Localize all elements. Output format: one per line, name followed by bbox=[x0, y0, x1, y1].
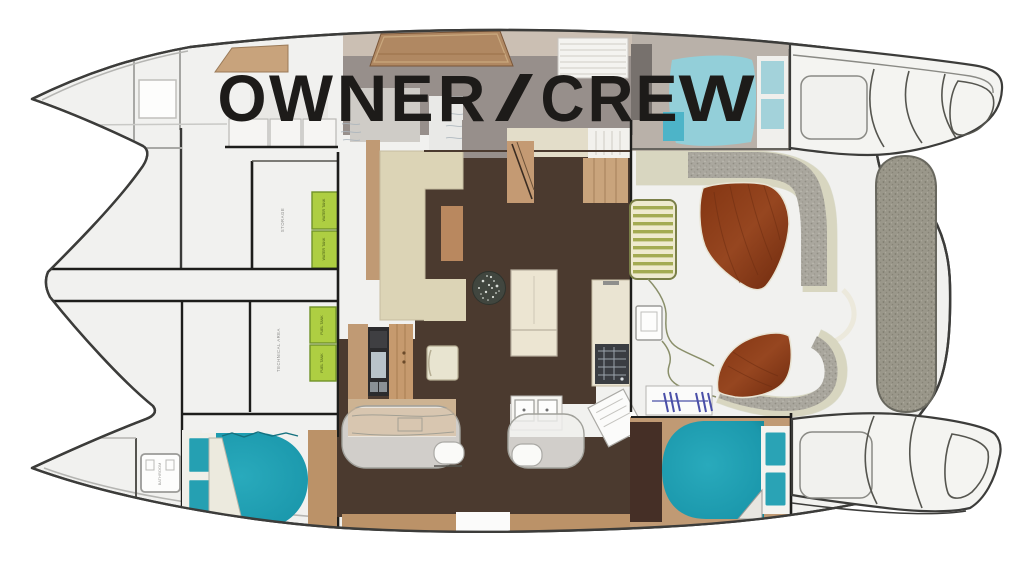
svg-text:FUEL TANK: FUEL TANK bbox=[320, 315, 324, 335]
svg-text:WATER TANK: WATER TANK bbox=[322, 198, 326, 221]
svg-text:FUEL TANK: FUEL TANK bbox=[320, 353, 324, 373]
svg-text:BATHROOM: BATHROOM bbox=[157, 463, 162, 486]
svg-text:E: E bbox=[391, 61, 434, 135]
svg-text:W: W bbox=[679, 61, 756, 135]
svg-text:R: R bbox=[438, 61, 486, 135]
svg-text:R: R bbox=[588, 61, 634, 135]
svg-text:STORAGE: STORAGE bbox=[280, 208, 285, 232]
svg-text:C: C bbox=[541, 61, 585, 135]
svg-text:WATER TANK: WATER TANK bbox=[322, 237, 326, 260]
svg-text:O: O bbox=[218, 61, 267, 135]
svg-text:E: E bbox=[636, 61, 678, 135]
svg-text:N: N bbox=[337, 61, 388, 135]
svg-text:TECHNICAL AREA: TECHNICAL AREA bbox=[276, 328, 281, 372]
svg-text:W: W bbox=[269, 61, 334, 135]
